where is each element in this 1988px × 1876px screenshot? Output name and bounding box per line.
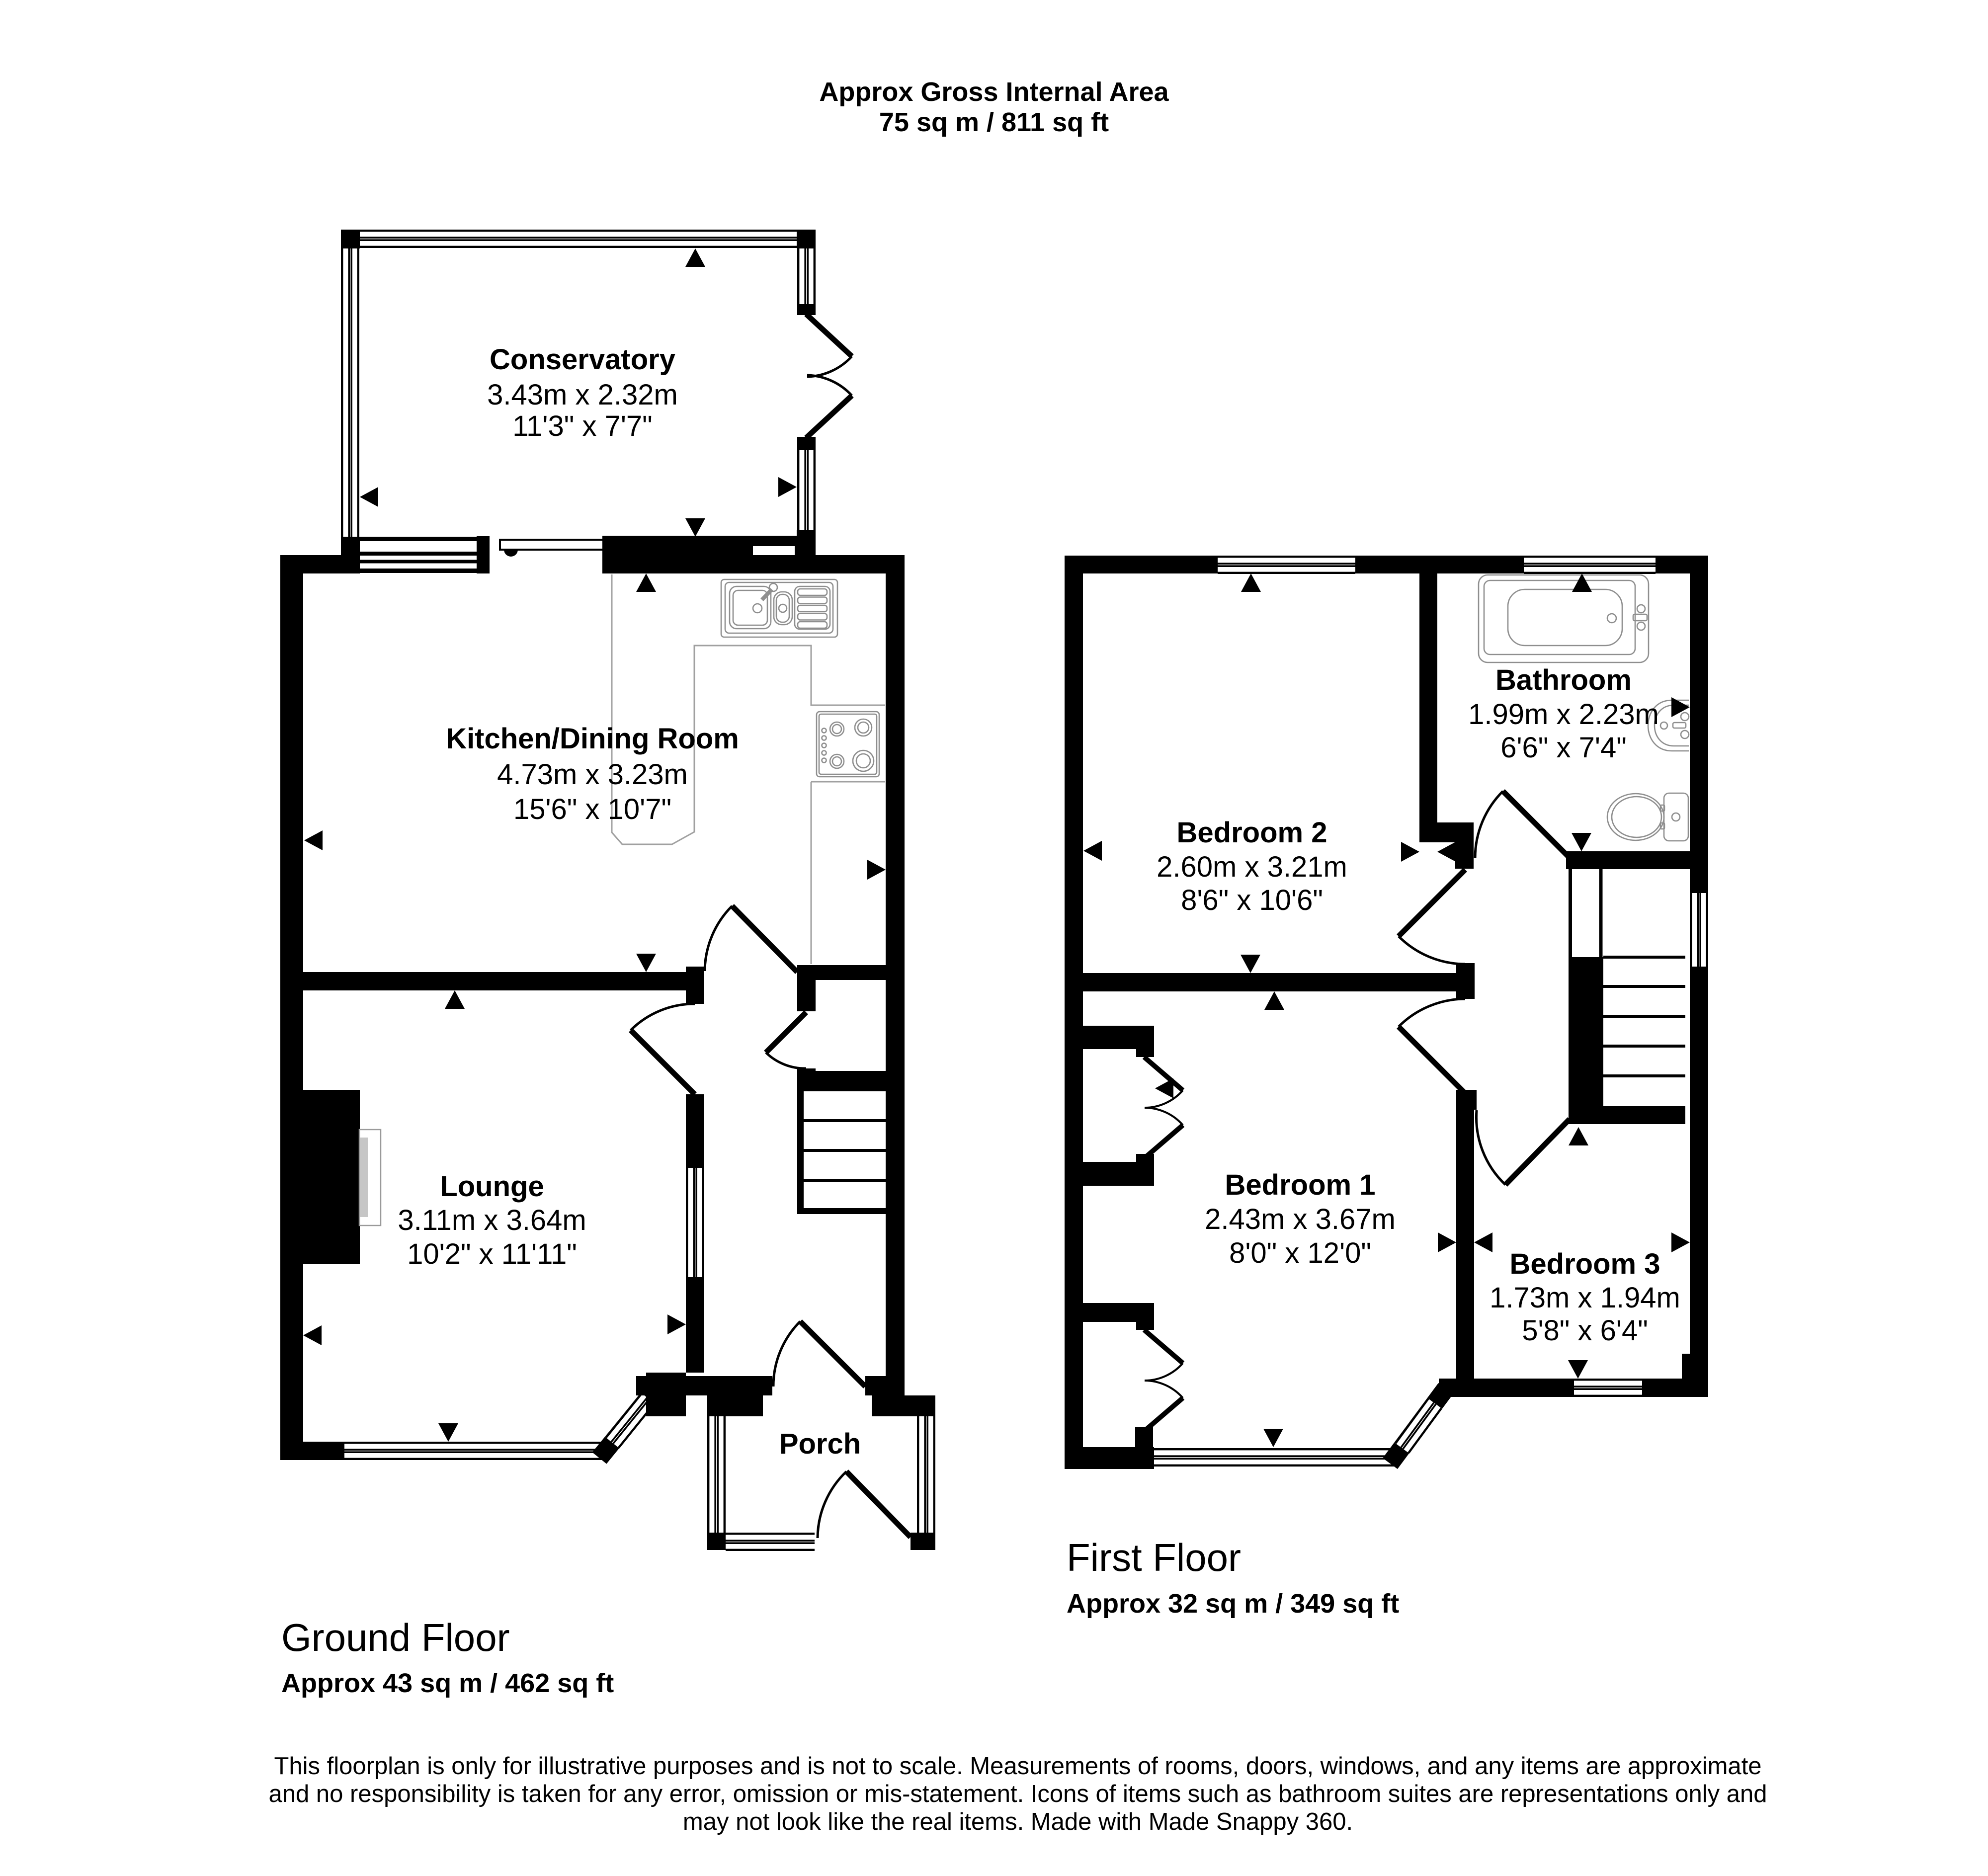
- svg-text:Conservatory: Conservatory: [490, 343, 675, 376]
- svg-text:2.60m x 3.21m: 2.60m x 3.21m: [1157, 851, 1347, 883]
- svg-text:4.73m x 3.23m: 4.73m x 3.23m: [497, 758, 688, 791]
- svg-text:6'6" x 7'4": 6'6" x 7'4": [1500, 732, 1627, 764]
- svg-text:Approx 32 sq m / 349 sq ft: Approx 32 sq m / 349 sq ft: [1067, 1589, 1399, 1619]
- svg-text:1.99m x 2.23m: 1.99m x 2.23m: [1468, 698, 1659, 731]
- svg-text:8'0" x 12'0": 8'0" x 12'0": [1229, 1237, 1371, 1269]
- svg-text:3.11m x 3.64m: 3.11m x 3.64m: [398, 1204, 586, 1236]
- svg-text:75 sq m / 811 sq ft: 75 sq m / 811 sq ft: [879, 107, 1109, 137]
- svg-text:Kitchen/Dining Room: Kitchen/Dining Room: [446, 723, 739, 755]
- svg-text:Lounge: Lounge: [440, 1170, 544, 1203]
- svg-text:Ground Floor: Ground Floor: [281, 1616, 510, 1659]
- svg-text:5'8" x 6'4": 5'8" x 6'4": [1522, 1314, 1648, 1347]
- svg-text:Approx Gross Internal Area: Approx Gross Internal Area: [819, 77, 1169, 107]
- svg-text:Bedroom 2: Bedroom 2: [1177, 816, 1327, 849]
- svg-text:Bedroom 1: Bedroom 1: [1225, 1169, 1376, 1201]
- svg-text:1.73m x 1.94m: 1.73m x 1.94m: [1490, 1282, 1680, 1314]
- svg-text:Bedroom 3: Bedroom 3: [1510, 1248, 1660, 1280]
- svg-text:2.43m x 3.67m: 2.43m x 3.67m: [1205, 1203, 1396, 1235]
- svg-text:Approx 43 sq m / 462 sq ft: Approx 43 sq m / 462 sq ft: [281, 1668, 614, 1698]
- svg-text:First Floor: First Floor: [1067, 1536, 1241, 1579]
- svg-text:11'3" x 7'7": 11'3" x 7'7": [512, 410, 653, 442]
- svg-text:Bathroom: Bathroom: [1495, 664, 1632, 696]
- svg-text:15'6" x 10'7": 15'6" x 10'7": [513, 793, 671, 825]
- svg-text:may not look like the real ite: may not look like the real items. Made w…: [683, 1808, 1353, 1835]
- svg-text:10'2" x 11'11": 10'2" x 11'11": [407, 1238, 577, 1270]
- svg-text:This floorplan is only for ill: This floorplan is only for illustrative …: [274, 1753, 1761, 1780]
- svg-text:and no responsibility is taken: and no responsibility is taken for any e…: [269, 1781, 1767, 1807]
- svg-text:Porch: Porch: [779, 1428, 861, 1460]
- svg-text:8'6" x 10'6": 8'6" x 10'6": [1181, 884, 1323, 916]
- svg-text:3.43m x 2.32m: 3.43m x 2.32m: [487, 379, 678, 411]
